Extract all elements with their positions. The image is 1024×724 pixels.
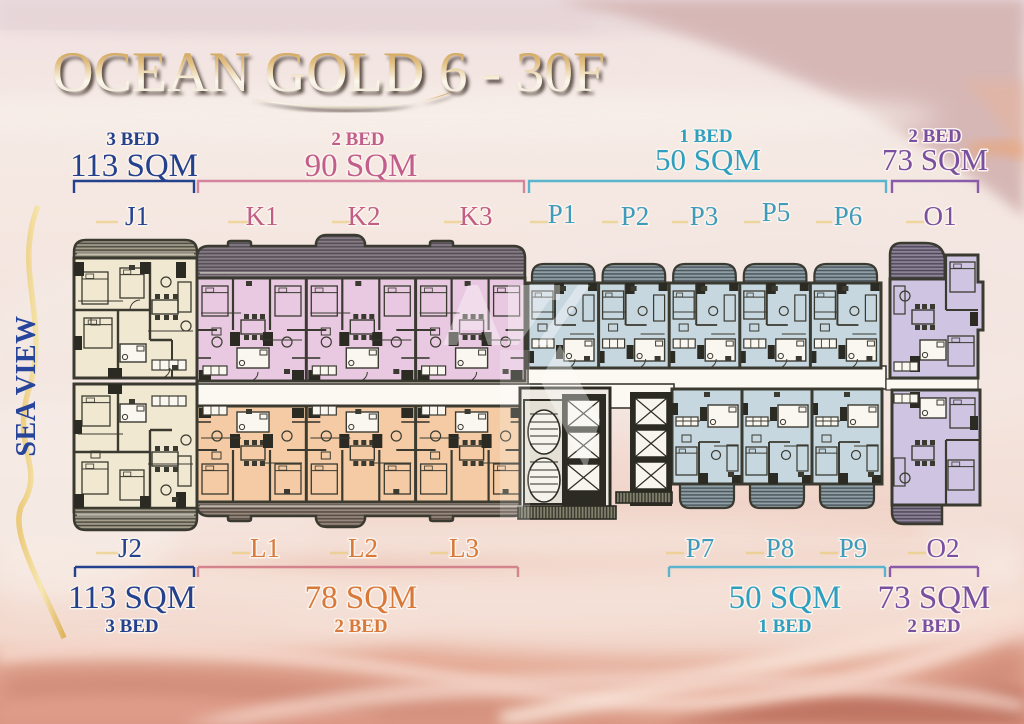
svg-text:73 SQM: 73 SQM xyxy=(878,580,991,616)
svg-text:P2: P2 xyxy=(621,201,650,231)
svg-text:2 BED: 2 BED xyxy=(334,616,387,637)
svg-text:L3: L3 xyxy=(449,533,479,563)
svg-text:113 SQM: 113 SQM xyxy=(68,580,196,616)
svg-text:K1: K1 xyxy=(246,201,279,231)
svg-text:L1: L1 xyxy=(250,533,280,563)
svg-text:78 SQM: 78 SQM xyxy=(305,580,418,616)
svg-text:113 SQM: 113 SQM xyxy=(70,148,198,184)
svg-text:P6: P6 xyxy=(834,201,863,231)
svg-text:50 SQM: 50 SQM xyxy=(729,580,842,616)
svg-text:3 BED: 3 BED xyxy=(105,616,158,637)
svg-text:O2: O2 xyxy=(927,533,960,563)
svg-text:90 SQM: 90 SQM xyxy=(305,148,418,184)
svg-text:P7: P7 xyxy=(686,533,715,563)
svg-text:OCEAN GOLD 6 - 30F: OCEAN GOLD 6 - 30F xyxy=(52,41,605,104)
svg-text:K2: K2 xyxy=(348,201,381,231)
svg-text:J2: J2 xyxy=(118,533,142,563)
svg-text:P8: P8 xyxy=(766,533,795,563)
svg-text:2 BED: 2 BED xyxy=(907,616,960,637)
svg-text:SEA VIEW: SEA VIEW xyxy=(11,315,42,456)
svg-text:P3: P3 xyxy=(690,201,719,231)
svg-text:L2: L2 xyxy=(348,533,378,563)
svg-text:K3: K3 xyxy=(460,201,493,231)
svg-text:3 BED: 3 BED xyxy=(106,129,159,150)
svg-text:P5: P5 xyxy=(762,197,791,227)
svg-text:1 BED: 1 BED xyxy=(758,616,811,637)
svg-text:J1: J1 xyxy=(125,201,149,231)
svg-text:2 BED: 2 BED xyxy=(331,129,384,150)
svg-text:P1: P1 xyxy=(548,199,577,229)
svg-text:O1: O1 xyxy=(924,201,957,231)
svg-text:P9: P9 xyxy=(839,533,868,563)
svg-text:50 SQM: 50 SQM xyxy=(655,142,761,177)
svg-text:73 SQM: 73 SQM xyxy=(882,142,988,177)
